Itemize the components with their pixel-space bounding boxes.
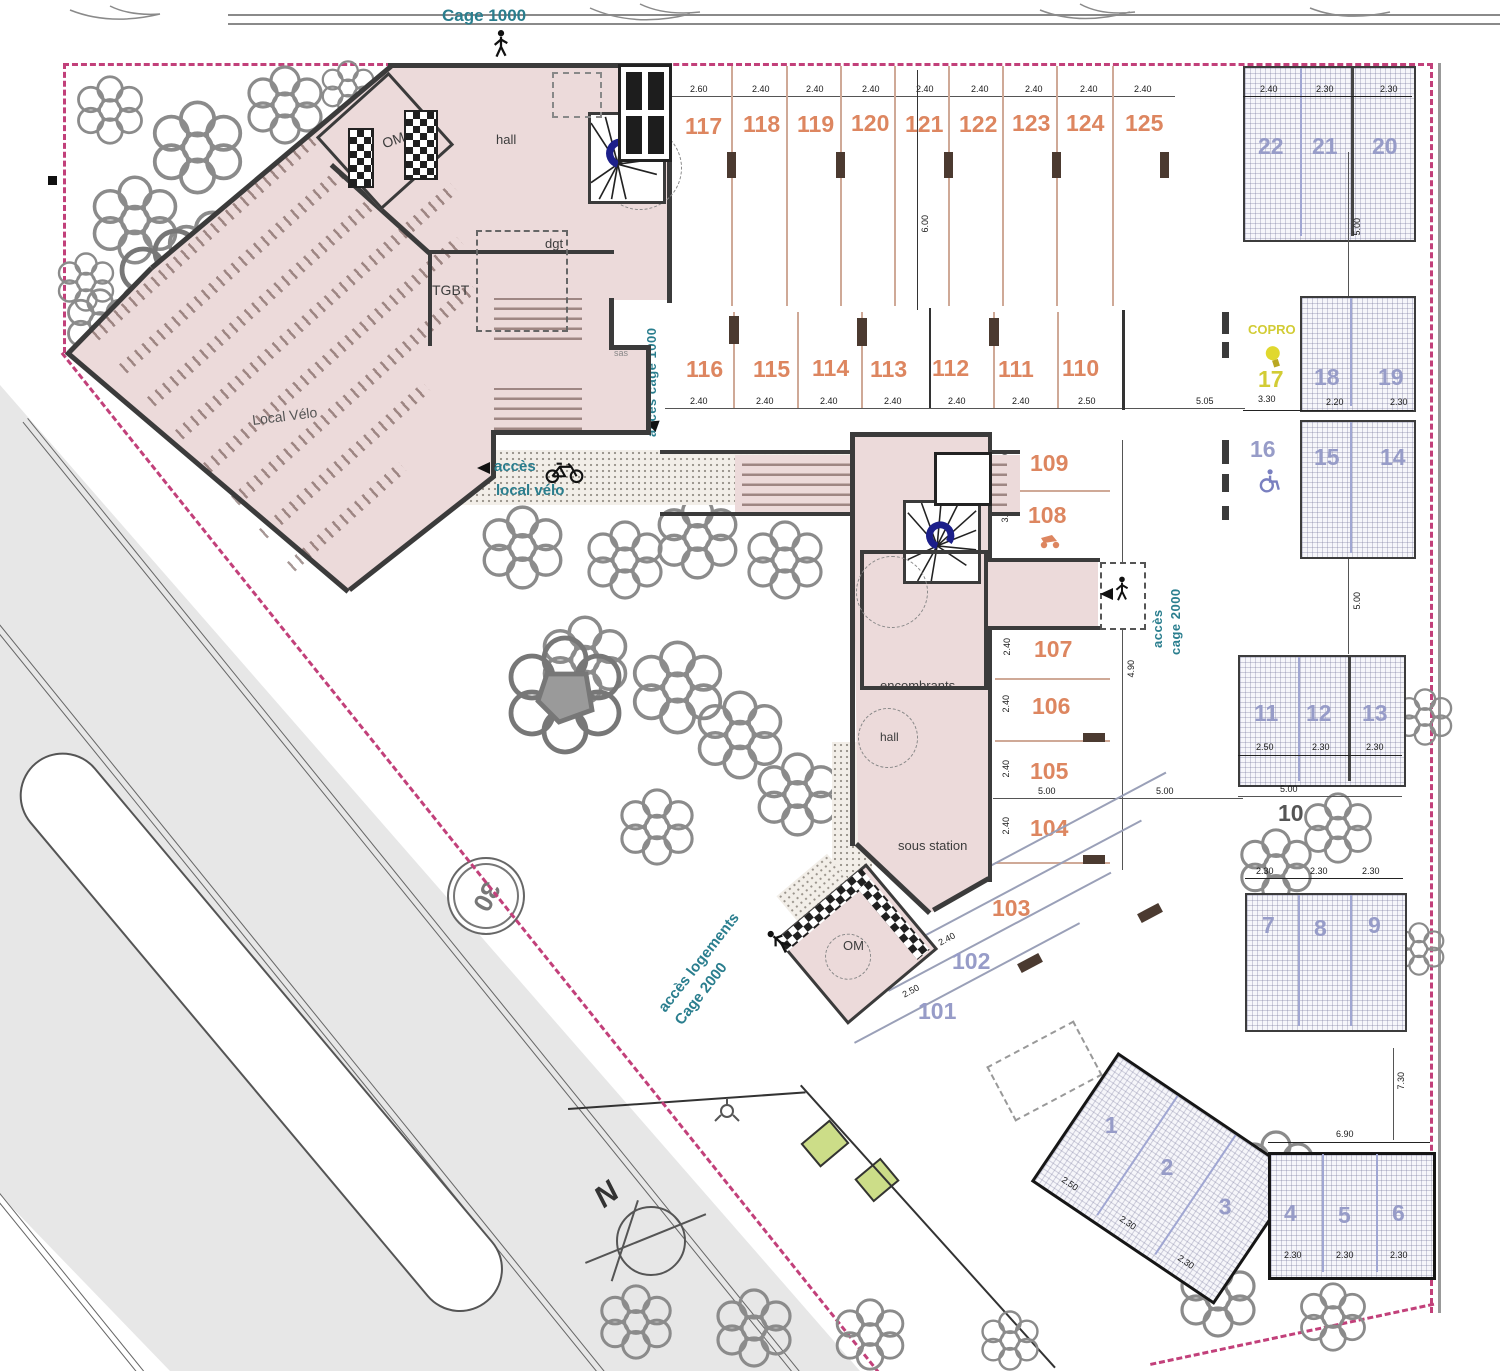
space-divider [1112, 66, 1114, 306]
access-velo-label: local vélo [496, 482, 564, 499]
dim-label: 2.40 [916, 84, 934, 94]
parking-space: 102 [952, 948, 990, 975]
parking-space: 110 [1062, 355, 1099, 382]
dim-label: 2.30 [1176, 1253, 1196, 1271]
parking-space: 119 [797, 111, 834, 138]
parking-space: 124 [1066, 110, 1104, 137]
dim-label: 2.30 [1256, 866, 1274, 876]
space-divider [797, 312, 799, 408]
dim-label: 2.40 [937, 930, 957, 947]
parking-space: 115 [753, 356, 790, 383]
parking-block [1300, 420, 1416, 559]
bicycle-icon [544, 458, 586, 484]
wheel-stop [727, 152, 736, 178]
dim-line [665, 96, 1175, 97]
wheel-stop [1083, 733, 1105, 742]
dim-label: 2.30 [1390, 1250, 1408, 1260]
wheel-stop [729, 316, 739, 344]
dim-label: 2.40 [884, 396, 902, 406]
parking-space: 111 [998, 356, 1034, 383]
parking-space: 120 [851, 110, 889, 137]
bike-rack-row [494, 388, 582, 430]
copro-label: COPRO [1248, 322, 1296, 337]
access-logements-label: accès logements Cage 2000 [655, 910, 759, 1029]
dim-label: 2.40 [948, 396, 966, 406]
dim-label: 2.40 [1002, 638, 1012, 656]
parking-block [1300, 296, 1416, 412]
dim-label: 2.30 [1316, 84, 1334, 94]
dim-label: 2.40 [862, 84, 880, 94]
door-swing [856, 556, 928, 628]
parking-space: 19 [1378, 364, 1404, 391]
dim-line [1243, 410, 1413, 411]
parking-space: 123 [1012, 110, 1050, 137]
parking-space: 10 [1278, 800, 1304, 827]
tree-icon [975, 1310, 1045, 1371]
dim-label: 2.30 [1310, 866, 1328, 876]
space-divider [948, 66, 950, 306]
dim-label: 2.30 [1366, 742, 1384, 752]
dim-label: 2.30 [1284, 1250, 1302, 1260]
dim-label: 5.00 [1156, 786, 1174, 796]
dim-line [1243, 96, 1412, 97]
tree-icon [598, 1284, 674, 1360]
wall-segment [1222, 474, 1229, 492]
wheel-stop [1052, 152, 1061, 178]
dim-line [1348, 152, 1349, 300]
dim-label: 2.50 [1060, 1175, 1080, 1193]
parking-space: 13 [1362, 700, 1388, 727]
dim-label: 2.30 [1312, 742, 1330, 752]
dim-label: 2.30 [1336, 1250, 1354, 1260]
space-divider [1350, 895, 1352, 1026]
wheel-stop [944, 152, 953, 178]
space-divider [1376, 1154, 1378, 1272]
wall-segment [1222, 506, 1229, 520]
dim-label: 2.40 [1134, 84, 1152, 94]
parking-space: 20 [1372, 133, 1398, 160]
parking-space: 105 [1030, 758, 1068, 785]
door-swing [816, 924, 881, 989]
dim-label: 2.60 [690, 84, 708, 94]
dim-label: 2.30 [1380, 84, 1398, 94]
wheel-stop [857, 318, 867, 346]
dim-label: 2.40 [971, 84, 989, 94]
room-sous-station-label: sous station [898, 838, 967, 853]
parking-space: 9 [1368, 912, 1381, 939]
space-divider [1057, 312, 1059, 408]
pedestrian-icon [1114, 574, 1130, 604]
dim-label: 2.40 [820, 396, 838, 406]
dim-label: 2.30 [1390, 397, 1408, 407]
parking-space: 114 [812, 355, 849, 382]
space-divider [1122, 310, 1125, 410]
street-access-label: Cage 1000 [442, 6, 526, 26]
dim-label: 2.40 [1012, 396, 1030, 406]
tree-icon [832, 1298, 908, 1371]
dim-line [1238, 755, 1402, 756]
space-divider [1348, 657, 1351, 781]
shaft-cell [648, 72, 664, 110]
tree-icon [745, 520, 825, 600]
parking-space: 7 [1262, 912, 1275, 939]
tree-icon [1298, 1282, 1368, 1352]
parking-space: 12 [1306, 700, 1332, 727]
wall-segment [1222, 440, 1229, 464]
future-space-outline [552, 72, 602, 118]
parking-space: 8 [1314, 915, 1327, 942]
parking-space: 101 [918, 998, 956, 1025]
dim-label: 7.30 [1396, 1072, 1406, 1090]
corridor-cage2000 [992, 562, 1098, 626]
space-divider [894, 66, 896, 306]
wall-segment [988, 626, 1100, 630]
access-velo-label: accès [494, 458, 536, 475]
dim-label: 2.40 [1001, 817, 1011, 835]
room-hall2-label: hall [880, 730, 899, 744]
space-divider [1002, 66, 1004, 306]
room-hall-label: hall [496, 132, 516, 147]
dim-line [665, 408, 1245, 409]
wheel-stop [1137, 903, 1163, 923]
dim-label: 4.90 [1126, 660, 1136, 678]
parking-space: 112 [932, 355, 969, 382]
wall-segment [1222, 312, 1229, 334]
dim-label: 2.50 [1078, 396, 1096, 406]
dim-label: 6.90 [1336, 1129, 1354, 1139]
survey-mark [48, 176, 57, 185]
tree-icon [505, 630, 625, 760]
dim-line [1122, 440, 1123, 870]
space-divider [1298, 657, 1300, 781]
space-divider [1056, 66, 1058, 306]
access-arrow-icon [477, 462, 490, 474]
dim-label: 5.00 [1352, 592, 1362, 610]
dim-label: 5.05 [1196, 396, 1214, 406]
tree-icon [618, 788, 696, 866]
wall-segment [609, 298, 614, 350]
shaft-cell [648, 116, 664, 154]
street-branches [0, 0, 1500, 36]
dim-label: 2.30 [1118, 1214, 1138, 1232]
parking-space: 116 [686, 356, 723, 383]
parking-space: 1 [1105, 1112, 1118, 1139]
space-divider [1300, 68, 1302, 236]
wheel-stop [836, 152, 845, 178]
floor-plan: 30 N Cage 1000 [0, 0, 1500, 1371]
wheel-stop [1160, 152, 1169, 178]
parking-space: 109 [1030, 450, 1068, 477]
parking-space: 2 [1161, 1154, 1174, 1181]
access-arrow-icon [1100, 588, 1113, 600]
dim-label: 5.00 [1038, 786, 1056, 796]
parking-space: 122 [959, 111, 997, 138]
tree-icon [585, 520, 665, 600]
parking-space: 21 [1312, 133, 1338, 160]
room-sas-label: sas [614, 348, 628, 358]
access-cage2000-label: cage 2000 [1168, 535, 1183, 655]
wall-segment [646, 345, 651, 435]
parking-space: 113 [870, 356, 907, 383]
shaft-grid [618, 64, 672, 162]
shaft-cell [626, 116, 642, 154]
space-divider [786, 66, 788, 306]
dim-label: 2.40 [690, 396, 708, 406]
dim-label: 2.40 [1025, 84, 1043, 94]
bench-planter [854, 1158, 899, 1203]
space-divider [1350, 422, 1352, 553]
dim-label: 2.20 [1326, 397, 1344, 407]
space-divider [840, 66, 842, 306]
dim-label: 2.40 [1001, 760, 1011, 778]
wall-segment [493, 430, 651, 435]
wall-segment [850, 432, 992, 437]
pedestrian-icon [492, 28, 510, 60]
parking-space: 107 [1034, 636, 1072, 663]
space-divider [929, 308, 931, 408]
dim-label: 2.50 [1256, 742, 1274, 752]
compass-icon [616, 1206, 686, 1276]
dim-label: 2.40 [806, 84, 824, 94]
tree-icon [714, 1288, 794, 1368]
street-lamp-icon [712, 1098, 742, 1128]
locker-shelf [348, 128, 374, 188]
speed-limit-marking: 30 [447, 857, 525, 935]
dim-line [917, 70, 918, 310]
dim-label: 2.40 [1001, 695, 1011, 713]
parking-space: 16 [1250, 436, 1276, 463]
dim-label: 2.40 [752, 84, 770, 94]
dim-line [1348, 556, 1349, 654]
dim-line [1245, 878, 1403, 879]
dim-label: 2.50 [901, 982, 921, 999]
tree-icon [75, 75, 145, 145]
parking-space: 4 [1284, 1200, 1297, 1227]
wall-segment [850, 432, 855, 846]
locker-shelf [404, 110, 438, 180]
parking-space: 6 [1392, 1200, 1405, 1227]
parking-space: 106 [1032, 693, 1070, 720]
space-divider [1350, 298, 1352, 406]
parking-space: 3 [1219, 1193, 1232, 1220]
dim-label: 3.30 [1258, 394, 1276, 404]
room-om2-label: OM [843, 938, 864, 953]
wheel-stop [1083, 855, 1105, 864]
parking-space: 11 [1254, 700, 1278, 727]
parking-space: 17 [1258, 366, 1284, 393]
access-cage2000-label: accès [1150, 548, 1165, 648]
wheel-stop [1017, 953, 1043, 973]
tree-icon [655, 495, 740, 580]
parking-space: 117 [685, 113, 722, 140]
dim-label: 2.40 [756, 396, 774, 406]
parking-space: 108 [1028, 502, 1066, 529]
shaft-cell [626, 72, 642, 110]
parking-space: 121 [905, 111, 943, 138]
dim-label: 5.00 [1352, 218, 1362, 236]
parking-space: 103 [992, 895, 1030, 922]
parking-space: 14 [1380, 444, 1406, 471]
parking-space: 22 [1258, 133, 1284, 160]
room-tgbt-label: TGBT [432, 282, 469, 298]
space-divider [1322, 1154, 1324, 1272]
parking-space: 118 [743, 111, 780, 138]
space-divider [995, 678, 1110, 680]
parking-space: 5 [1338, 1202, 1351, 1229]
dim-line [1393, 1048, 1394, 1140]
dim-label: 6.00 [920, 215, 930, 233]
tree-icon [56, 252, 116, 312]
space-divider [1298, 895, 1300, 1026]
space-divider [731, 66, 733, 306]
wheelchair-icon [1258, 468, 1280, 494]
scooter-icon [1038, 530, 1062, 552]
dim-label: 2.30 [1362, 866, 1380, 876]
space-divider [1351, 68, 1354, 236]
dim-line [1238, 796, 1402, 797]
shaft-box [934, 452, 992, 506]
tree-icon [480, 505, 565, 590]
bench-planter [800, 1119, 849, 1167]
dim-line [1268, 1142, 1430, 1143]
parking-space: 125 [1125, 110, 1163, 137]
dim-label: 2.40 [1260, 84, 1278, 94]
parking-space: 18 [1314, 364, 1340, 391]
wall-segment [428, 250, 432, 346]
wall-segment [988, 626, 992, 882]
wall-segment [1222, 342, 1229, 358]
tree-icon [755, 752, 840, 837]
dim-label: 2.40 [1080, 84, 1098, 94]
parking-space: 15 [1314, 444, 1340, 471]
room-encombrants-label: encombrants [880, 678, 955, 693]
partition-outline [476, 230, 568, 332]
dim-label: 5.00 [1280, 784, 1298, 794]
wheel-stop [989, 318, 999, 346]
